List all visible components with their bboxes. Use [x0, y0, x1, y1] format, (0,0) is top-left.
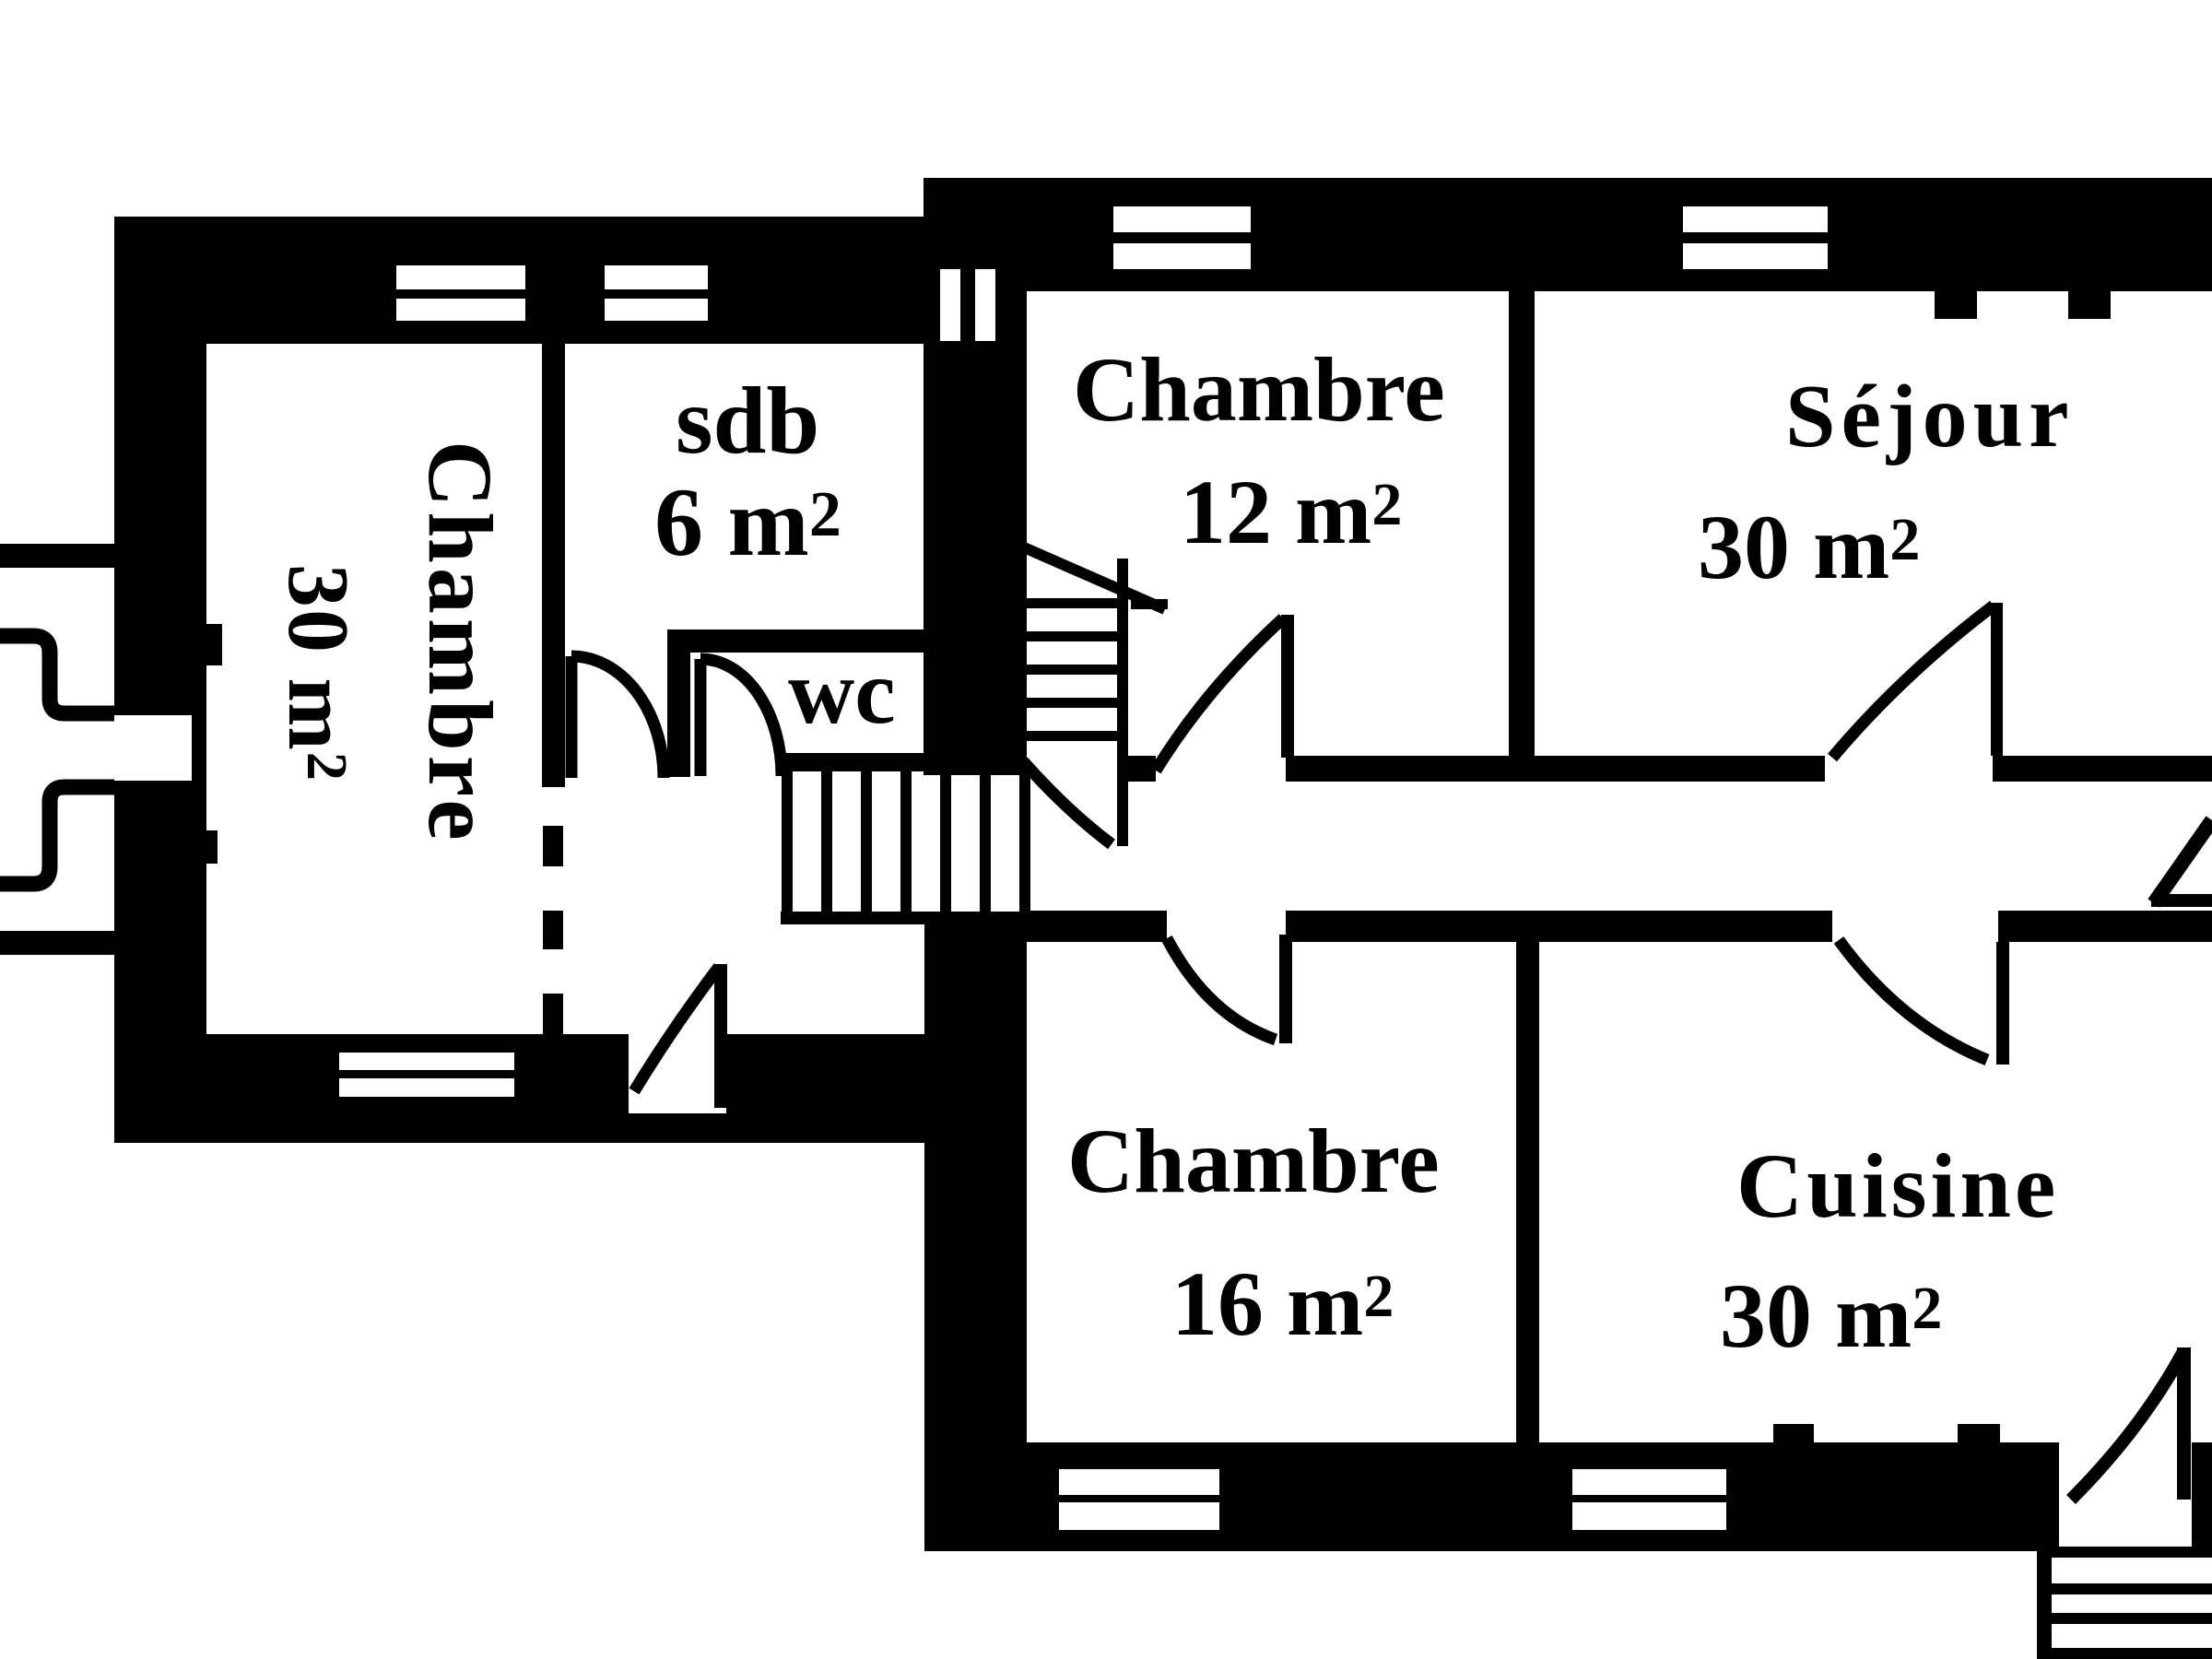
svg-text:Chambre: Chambre — [409, 441, 512, 845]
svg-text:Cuisine: Cuisine — [1736, 1135, 2059, 1237]
svg-text:sdb: sdb — [676, 368, 819, 474]
svg-text:30 m2: 30 m2 — [1698, 496, 1920, 598]
svg-text:30 m2: 30 m2 — [270, 564, 366, 782]
svg-text:Chambre: Chambre — [1073, 338, 1445, 441]
svg-text:Chambre: Chambre — [1067, 1110, 1440, 1212]
svg-text:wc: wc — [788, 641, 896, 743]
svg-text:Séjour: Séjour — [1785, 367, 2075, 466]
svg-text:12 m2: 12 m2 — [1180, 461, 1402, 563]
svg-text:30 m2: 30 m2 — [1720, 1265, 1942, 1367]
svg-text:16 m2: 16 m2 — [1171, 1253, 1394, 1355]
